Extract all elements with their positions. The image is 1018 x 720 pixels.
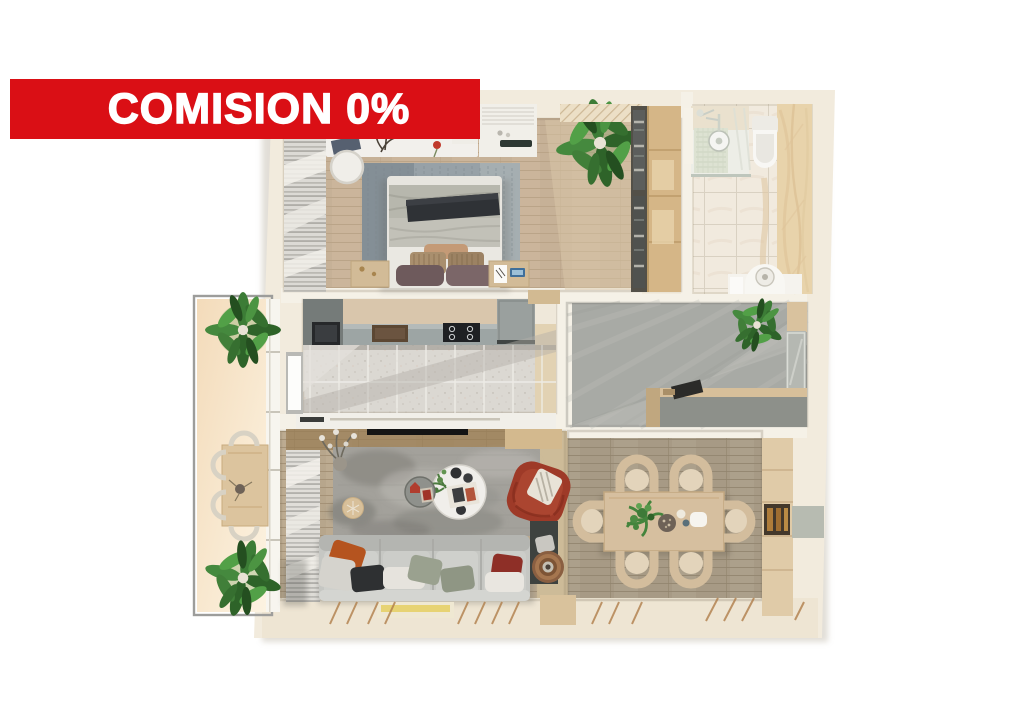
svg-text:COMISION 0%: COMISION 0%	[108, 85, 411, 133]
